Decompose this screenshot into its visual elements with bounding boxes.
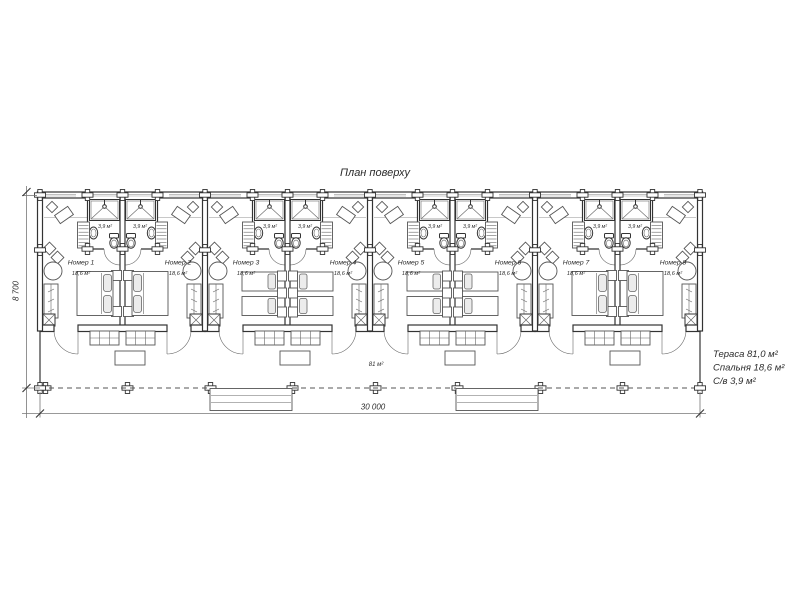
bath-area-label: 3,9 м² <box>428 224 442 230</box>
room-5-label: Номер 5 <box>398 260 425 267</box>
entrance-steps <box>456 389 538 411</box>
legend-line-terrace: Тераса 81,0 м² <box>713 349 779 360</box>
legend: Тераса 81,0 м² Спальня 18,6 м² С/в 3,9 м… <box>713 349 785 387</box>
room-2-label: Номер 2 <box>165 260 192 267</box>
drawing-title: План поверху <box>340 167 411 179</box>
twin-beds-icon <box>289 271 334 317</box>
twin-beds-icon <box>454 271 499 317</box>
room-2-area: 18,6 м² <box>169 271 188 277</box>
terrace-area-label: 81 м² <box>369 362 384 368</box>
double-bed-icon <box>77 271 122 317</box>
legend-line-bathroom: С/в 3,9 м² <box>713 376 756 387</box>
room-pair-5-6 <box>370 190 535 394</box>
room-6-label: Номер 6 <box>495 260 522 267</box>
room-6-area: 18,6 м² <box>499 271 518 277</box>
bath-area-label: 3,9 м² <box>463 224 477 230</box>
bath-area-label: 3,9 м² <box>593 224 607 230</box>
bath-area-label: 3,9 м² <box>298 224 312 230</box>
drawing-page: 30 000 8 700 План поверху Номер 1 18,6 м… <box>0 0 800 600</box>
floor-plan-canvas: 30 000 8 700 План поверху Номер 1 18,6 м… <box>0 0 800 600</box>
bath-area-label: 3,9 м² <box>133 224 147 230</box>
double-bed-icon <box>572 271 617 317</box>
twin-beds-icon <box>407 271 452 317</box>
room-7-area: 18,6 м² <box>567 271 586 277</box>
room-8-area: 18,6 м² <box>664 271 683 277</box>
depth-dimension-label: 8 700 <box>12 280 21 301</box>
double-bed-icon <box>124 271 169 317</box>
room-1-label: Номер 1 <box>68 260 95 267</box>
room-pair-1-2 <box>40 190 205 394</box>
bath-area-label: 3,9 м² <box>263 224 277 230</box>
legend-line-bedroom: Спальня 18,6 м² <box>713 363 785 374</box>
room-3-label: Номер 3 <box>233 260 260 267</box>
bath-area-label: 3,9 м² <box>628 224 642 230</box>
room-8-label: Номер 8 <box>660 260 687 267</box>
double-bed-icon <box>619 271 664 317</box>
room-1-area: 18,6 м² <box>72 271 91 277</box>
entrance-steps <box>210 389 292 411</box>
room-pair-7-8 <box>535 190 700 394</box>
room-pair-3-4 <box>205 190 370 394</box>
bath-area-label: 3,9 м² <box>98 224 112 230</box>
width-dimension-label: 30 000 <box>361 403 386 412</box>
room-3-area: 18,6 м² <box>237 271 256 277</box>
room-7-label: Номер 7 <box>563 260 590 267</box>
room-4-area: 18,6 м² <box>334 271 353 277</box>
room-4-label: Номер 4 <box>330 260 357 267</box>
twin-beds-icon <box>242 271 287 317</box>
room-5-area: 18,6 м² <box>402 271 421 277</box>
